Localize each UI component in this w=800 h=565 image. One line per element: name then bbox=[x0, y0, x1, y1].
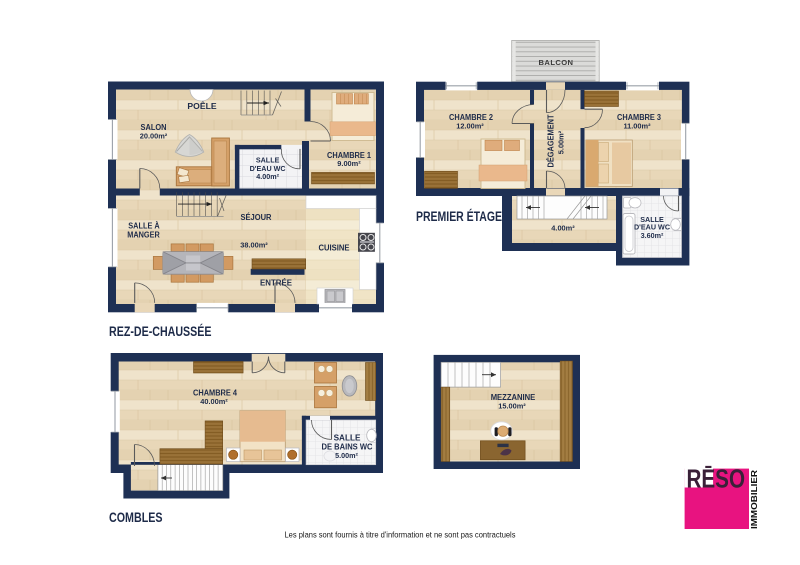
svg-text:SALLE: SALLE bbox=[334, 434, 361, 443]
svg-text:11.00m²: 11.00m² bbox=[623, 122, 651, 131]
svg-text:CHAMBRE 2: CHAMBRE 2 bbox=[449, 112, 493, 122]
svg-text:9.00m²: 9.00m² bbox=[337, 159, 361, 168]
svg-text:Les plans sont fournis à titre: Les plans sont fournis à titre d'informa… bbox=[285, 529, 516, 539]
svg-text:SALON: SALON bbox=[141, 122, 167, 132]
svg-text:4.00m²: 4.00m² bbox=[551, 224, 575, 233]
svg-text:3.60m²: 3.60m² bbox=[641, 231, 664, 240]
svg-text:MANGER: MANGER bbox=[127, 230, 160, 240]
svg-text:RĒSO: RĒSO bbox=[687, 463, 746, 493]
svg-text:BALCON: BALCON bbox=[539, 58, 574, 67]
svg-text:PREMIER ÉTAGE: PREMIER ÉTAGE bbox=[416, 209, 502, 224]
svg-text:CUISINE: CUISINE bbox=[319, 243, 350, 253]
svg-text:ENTRÉE: ENTRÉE bbox=[260, 278, 292, 288]
svg-text:COMBLES: COMBLES bbox=[109, 510, 163, 525]
svg-text:SÉJOUR: SÉJOUR bbox=[241, 212, 273, 222]
svg-text:15.00m²: 15.00m² bbox=[498, 402, 526, 411]
svg-text:20.00m²: 20.00m² bbox=[140, 132, 168, 141]
svg-text:12.00m²: 12.00m² bbox=[456, 122, 484, 131]
svg-text:DE BAINS WC: DE BAINS WC bbox=[322, 442, 373, 451]
svg-text:DÉGAGEMENT: DÉGAGEMENT bbox=[546, 114, 556, 168]
svg-text:REZ-DE-CHAUSSÉE: REZ-DE-CHAUSSÉE bbox=[109, 324, 212, 339]
svg-text:5.00m²: 5.00m² bbox=[335, 451, 358, 460]
svg-text:MEZZANINE: MEZZANINE bbox=[491, 392, 536, 402]
svg-text:POÊLE: POÊLE bbox=[187, 100, 216, 111]
svg-text:CHAMBRE 3: CHAMBRE 3 bbox=[617, 112, 661, 122]
svg-text:CHAMBRE 4: CHAMBRE 4 bbox=[193, 388, 237, 398]
svg-text:38.00m²: 38.00m² bbox=[240, 241, 268, 250]
svg-text:4.00m²: 4.00m² bbox=[256, 172, 279, 181]
svg-text:40.00m²: 40.00m² bbox=[200, 397, 228, 406]
svg-text:5.00m²: 5.00m² bbox=[557, 130, 566, 154]
svg-text:IMMOBILIER: IMMOBILIER bbox=[749, 469, 759, 529]
